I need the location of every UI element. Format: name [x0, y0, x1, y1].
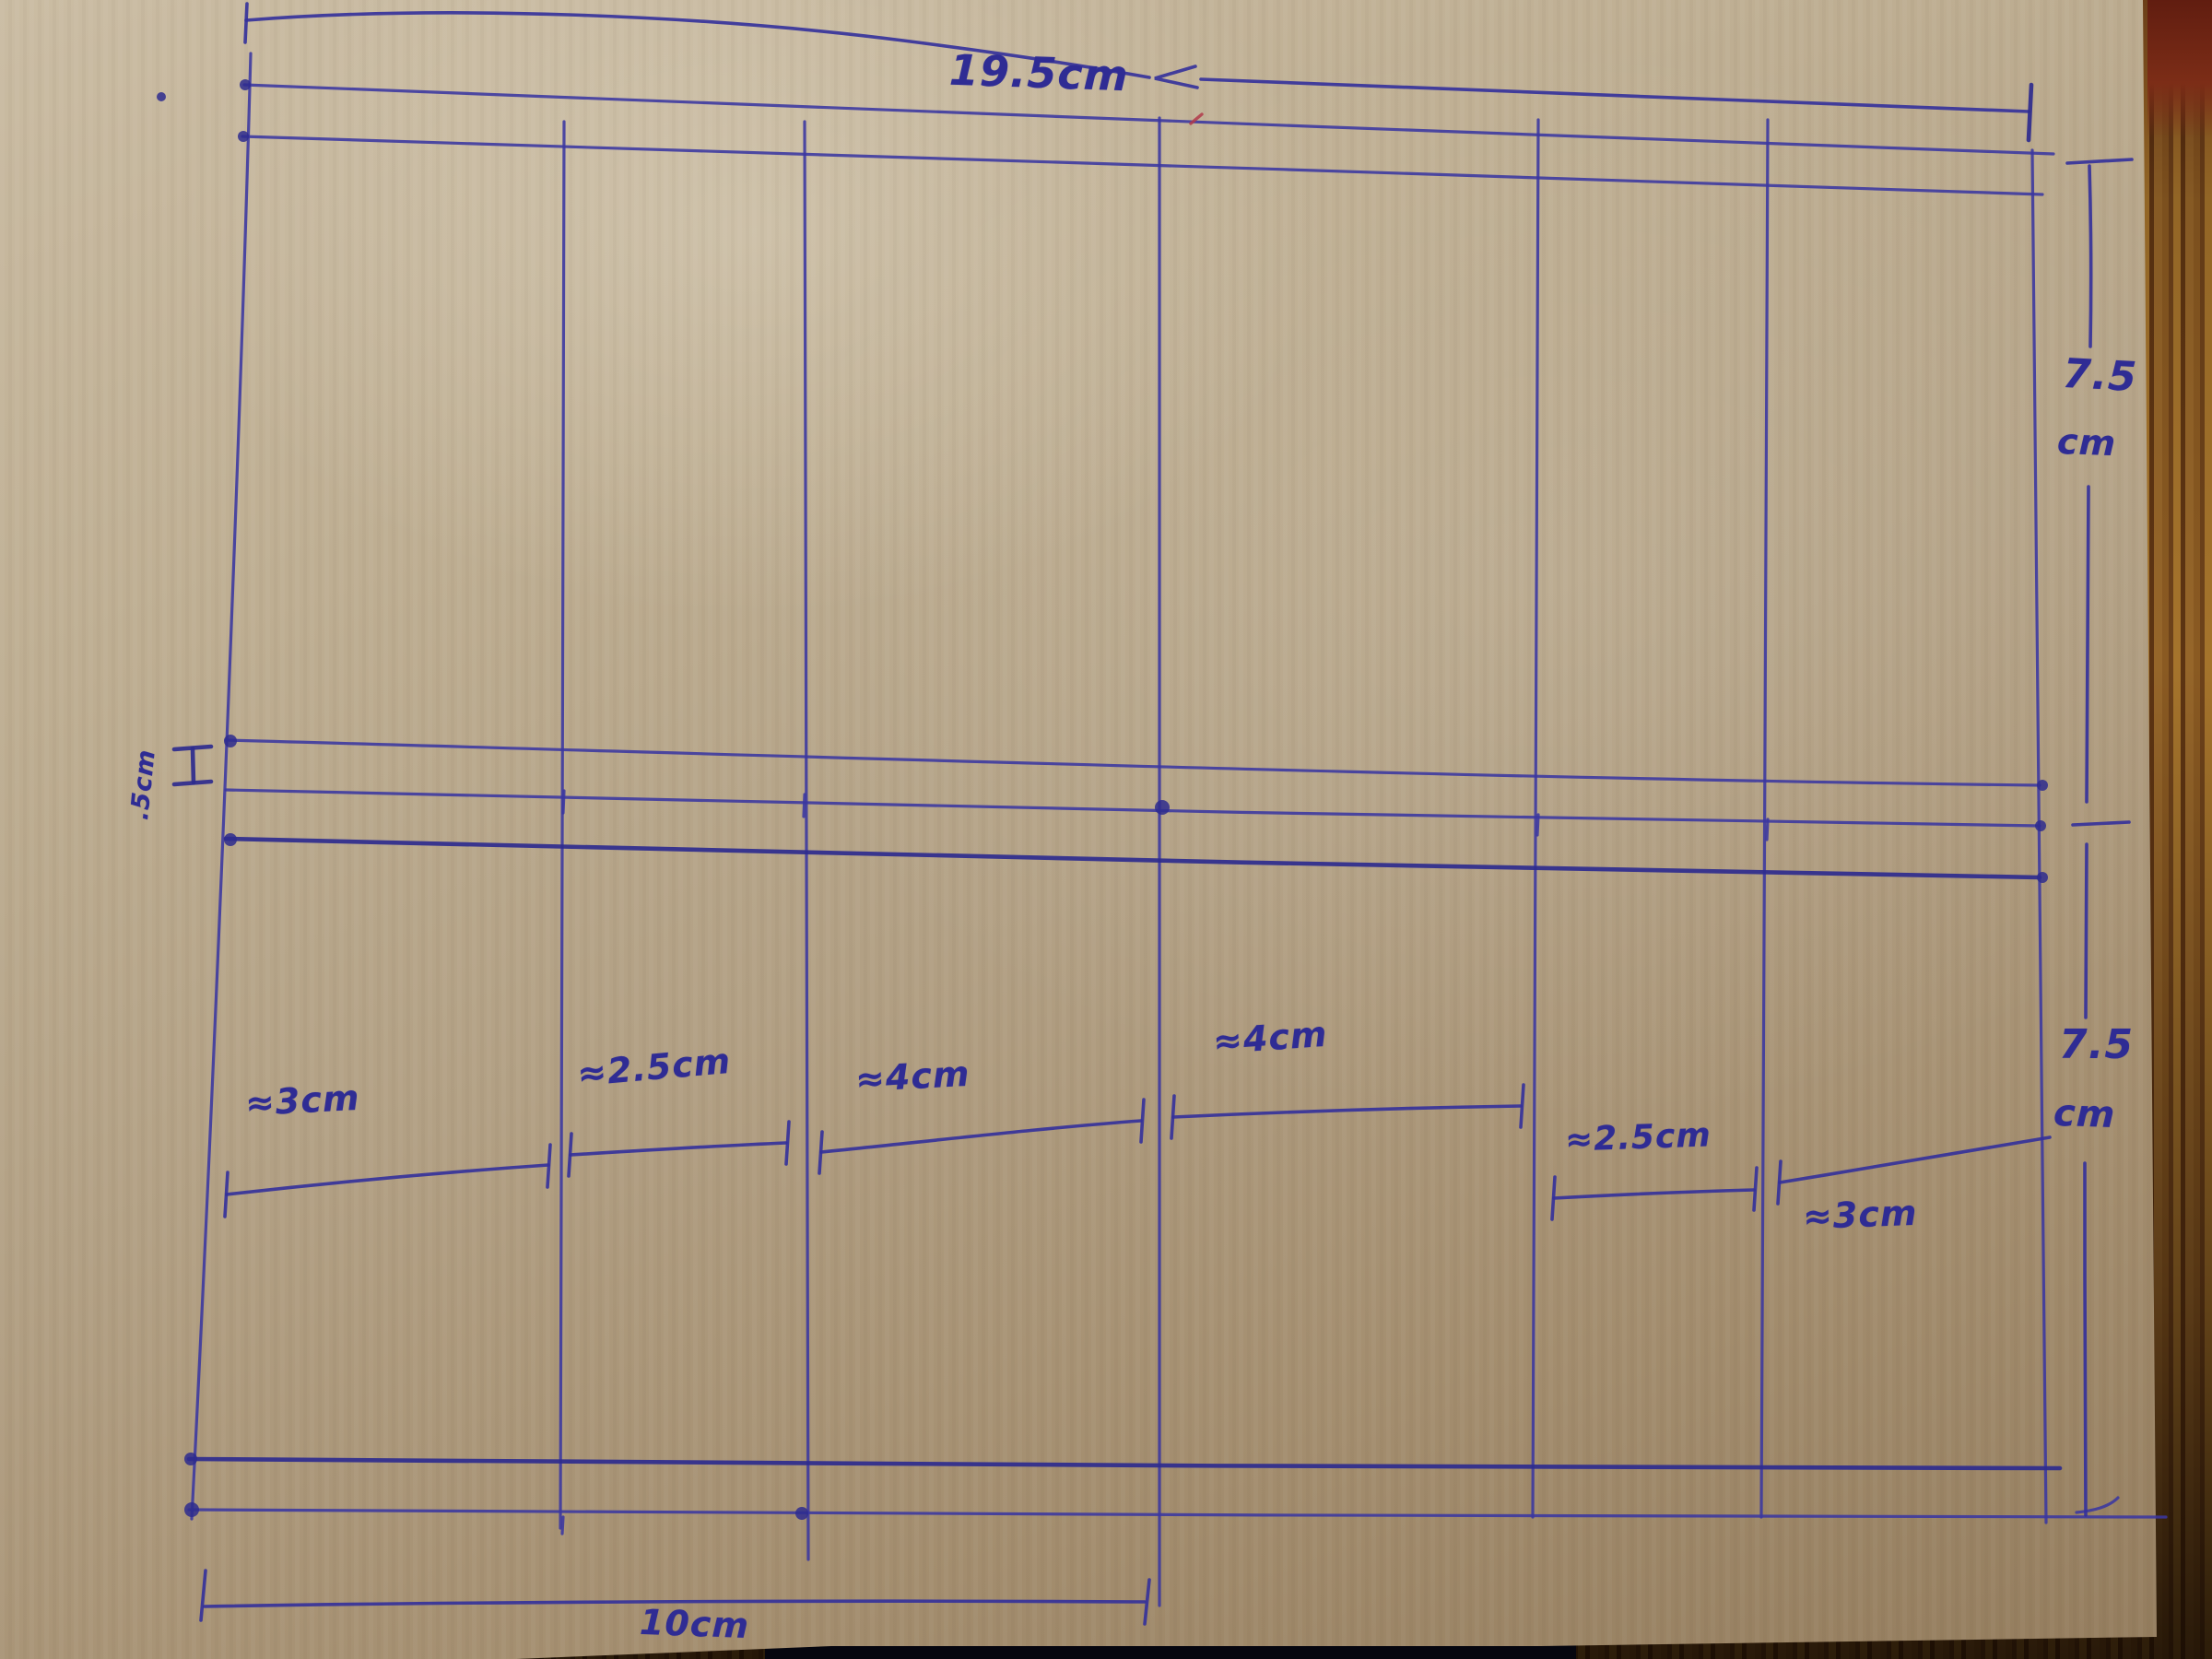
middle-tick-fold2: [804, 794, 805, 817]
bottom-tick-fold1: [562, 1517, 563, 1534]
label-lower-right-height-unit: cm: [2053, 1092, 2116, 1136]
ink-blob: [2035, 820, 2046, 831]
photo-cardboard-box-template: 19.5cm 7.5 cm .5cm ≈3cm ≈2.5cm ≈4cm ≈4cm…: [0, 0, 2212, 1659]
label-lower-right-height-value: 7.5: [2059, 1021, 2134, 1068]
label-upper-right-height-value: 7.5: [2062, 350, 2139, 401]
label-segment-1: ≈3cm: [244, 1077, 361, 1124]
total-width-dim-end-tick: [2029, 85, 2031, 140]
middle-tick-fold4: [1537, 815, 1538, 835]
fold-line-left-edge: [192, 53, 251, 1519]
total-width-dim-start-tick: [245, 4, 247, 42]
ink-blob: [184, 1453, 197, 1465]
fold-line-right-edge: [2032, 150, 2046, 1523]
label-segment-4: ≈4cm: [1212, 1014, 1329, 1063]
gap-dim-bottom-bar: [174, 782, 211, 784]
gap-dim-stem: [193, 748, 194, 782]
right-dim-lower-line-a: [2086, 844, 2087, 1018]
label-upper-right-height-unit: cm: [2056, 421, 2117, 464]
segment-dim-4cm-left: [819, 1100, 1144, 1173]
bottom-dim-end-tick: [1145, 1580, 1149, 1624]
segment-dim-4cm-right: [1171, 1085, 1524, 1138]
middle-band-line-1: [226, 740, 2040, 785]
ink-blob: [224, 735, 237, 747]
segment-dim-3cm-left: [225, 1145, 550, 1217]
bottom-edge-line-1: [189, 1459, 2060, 1468]
middle-tick-fold5: [1767, 819, 1768, 840]
bottom-edge-line-2: [189, 1510, 2166, 1517]
ink-blob: [1155, 800, 1170, 815]
segment-dim-2p5cm-left: [569, 1122, 789, 1176]
ink-blob: [238, 131, 249, 142]
right-dim-upper-line-b: [2087, 487, 2088, 802]
stray-ink-dot: [157, 92, 166, 101]
label-bottom-width: 10cm: [639, 1602, 749, 1646]
hand-drawn-template-lines: [0, 0, 2212, 1659]
right-dim-upper-line-a: [2089, 166, 2091, 347]
fold-line-1: [560, 122, 564, 1528]
right-dim-lower-line-b: [2085, 1163, 2086, 1515]
right-dim-middle-tick: [2073, 822, 2129, 825]
label-overall-width: 19.5cm: [948, 45, 1129, 101]
middle-band-line-3: [226, 839, 2040, 877]
ink-blob: [2037, 872, 2048, 883]
bottom-dim-start-tick: [201, 1571, 206, 1620]
ink-blob: [224, 833, 237, 846]
top-edge-line-2: [242, 136, 2042, 194]
middle-tick-fold1: [563, 791, 564, 813]
label-segment-5: ≈2.5cm: [1564, 1116, 1712, 1159]
right-dim-top-tbar: [2067, 159, 2132, 163]
total-width-dim-arrowhead: [1155, 66, 1197, 88]
label-segment-3: ≈4cm: [854, 1053, 971, 1100]
ink-blob: [795, 1507, 808, 1520]
label-segment-6: ≈3cm: [1802, 1193, 1918, 1237]
total-width-dim-line-right: [1201, 79, 2029, 112]
fold-line-2: [805, 122, 808, 1559]
bottom-edge-hook: [2077, 1498, 2118, 1512]
top-edge-line-1: [244, 85, 2053, 154]
segment-dim-2p5cm-right: [1552, 1168, 1757, 1219]
ink-blob: [184, 1502, 199, 1517]
ink-blob: [2037, 780, 2048, 791]
ink-blob: [240, 79, 251, 90]
